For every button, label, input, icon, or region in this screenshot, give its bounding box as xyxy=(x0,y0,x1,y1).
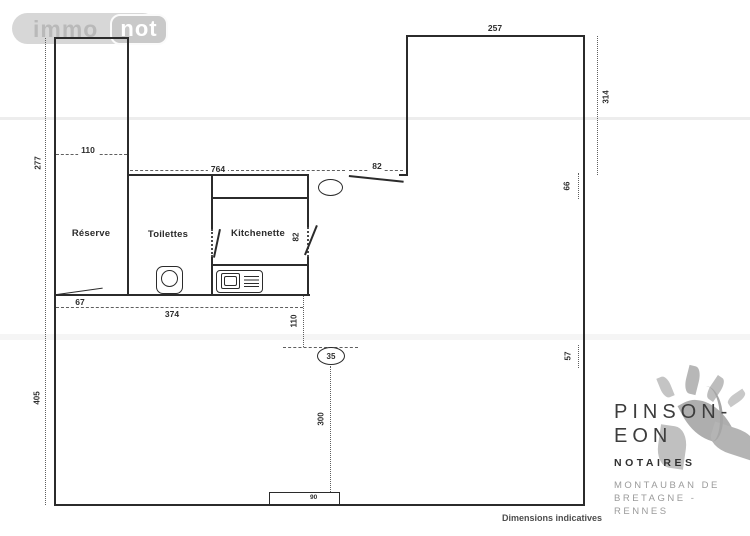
dimension-line xyxy=(330,366,331,492)
wall-tower-top xyxy=(54,37,129,39)
dim-entry-width: 90 xyxy=(310,494,317,501)
wall-main-top xyxy=(129,174,309,176)
dim-pole-to-front: 300 xyxy=(317,412,326,425)
notary-address-line1: MONTAUBAN DE xyxy=(614,479,732,492)
kitchenette-counter-front-line xyxy=(213,264,307,266)
toilet-bowl-icon xyxy=(161,270,178,287)
immonot-logo: immo not xyxy=(12,13,158,44)
room-label-reserve: Réserve xyxy=(61,228,121,239)
wall-toilettes-right-upper xyxy=(211,176,213,229)
dim-right-outer: 314 xyxy=(602,90,611,103)
oval-fixture-icon xyxy=(318,179,343,196)
dim-offset-below-rooms: 110 xyxy=(290,315,299,328)
wall-topright-foot xyxy=(399,174,408,176)
notary-name-line1: PINSON- xyxy=(614,400,732,424)
dim-door-top: 82 xyxy=(369,161,384,171)
dimension-line xyxy=(303,296,304,347)
wall-topright-top xyxy=(406,35,585,37)
dim-door-reserve: 67 xyxy=(75,297,84,307)
door-opening-toilettes xyxy=(211,229,213,257)
dimension-line xyxy=(45,38,46,505)
notary-subtitle: NOTAIRES xyxy=(614,457,732,469)
dim-right-window-lower: 57 xyxy=(564,352,573,361)
dimension-line xyxy=(56,307,303,308)
column-marker: 35 xyxy=(317,347,345,365)
sink-drainer-icon xyxy=(244,276,259,289)
immonot-logo-not-box: not xyxy=(110,14,168,45)
scan-artifact xyxy=(0,117,750,120)
wall-rooms-bottom xyxy=(54,294,310,296)
dim-rooms-width: 374 xyxy=(165,309,179,319)
sink-basin-inner-icon xyxy=(224,276,237,286)
dim-right-window-upper: 66 xyxy=(563,182,572,191)
dim-left-lower: 405 xyxy=(33,391,42,404)
dim-left-upper: 277 xyxy=(34,156,43,169)
dim-total-width: 764 xyxy=(208,164,228,174)
dim-tower-width: 110 xyxy=(78,145,98,155)
dimension-line xyxy=(578,173,579,199)
wall-left xyxy=(54,37,56,506)
entry-threshold: 90 xyxy=(269,492,340,505)
dim-pole-diameter: 35 xyxy=(327,352,336,361)
wall-kitchenette-right-lower xyxy=(307,257,309,296)
wall-toilettes-right-lower xyxy=(211,257,213,296)
notary-name-line2: EON xyxy=(614,424,732,448)
dimension-line xyxy=(130,170,345,171)
dimension-line xyxy=(578,345,579,368)
dim-topright-width: 257 xyxy=(488,23,502,33)
wall-kitchenette-right-upper xyxy=(307,176,309,227)
room-label-toilettes: Toilettes xyxy=(138,229,198,240)
door-swing-line-toilettes xyxy=(213,229,220,258)
dimension-line xyxy=(597,36,598,175)
door-swing-line-top xyxy=(349,175,404,182)
room-label-kitchenette: Kitchenette xyxy=(223,228,293,239)
kitchenette-counter-top-line xyxy=(213,197,307,199)
wall-topright-left xyxy=(406,35,408,176)
scan-artifact xyxy=(0,334,750,340)
wall-right xyxy=(583,35,585,506)
floor-plan-page: immo not 110 277 405 257 314 764 82 66 5… xyxy=(0,0,750,536)
notary-logo: PINSON- EON NOTAIRES MONTAUBAN DE BRETAG… xyxy=(614,400,732,518)
footnote-dimensions: Dimensions indicatives xyxy=(502,513,602,523)
notary-address-line2: BRETAGNE - xyxy=(614,492,732,505)
dimension-line xyxy=(283,347,358,348)
notary-address-line3: RENNES xyxy=(614,505,732,518)
wall-reserve-right xyxy=(127,37,129,296)
